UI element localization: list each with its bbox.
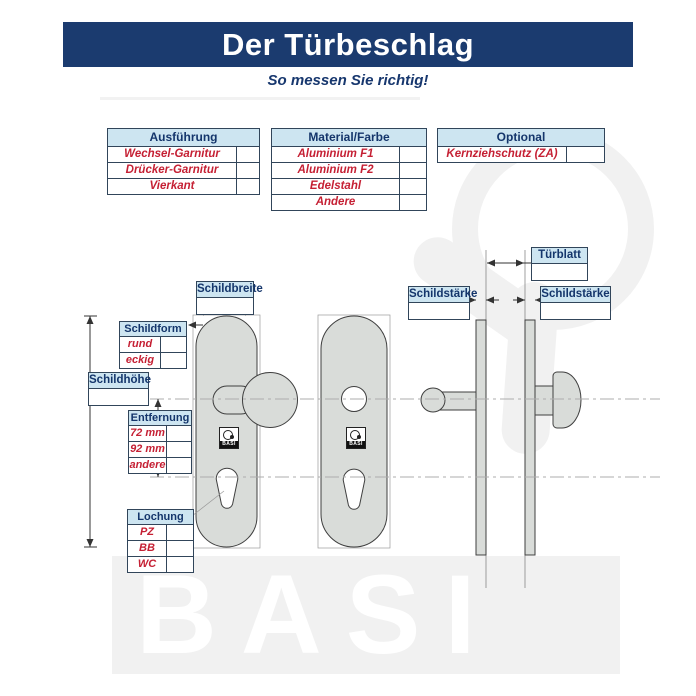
table-row: Andere — [272, 194, 426, 210]
table-row: PZ — [128, 525, 193, 540]
value-box — [196, 298, 254, 315]
table-optional: Optional Kernziehschutz (ZA) — [437, 128, 605, 163]
table-row: 72 mm — [129, 426, 191, 441]
table-ausfuehrung: Ausführung Wechsel-Garnitur Drücker-Garn… — [107, 128, 260, 195]
option-label: Aluminium F2 — [272, 163, 399, 178]
table-row: Kernziehschutz (ZA) — [438, 147, 604, 162]
basi-logo: BASI — [346, 427, 366, 449]
table-row: Vierkant — [108, 178, 259, 194]
table-row: Aluminium F2 — [272, 162, 426, 178]
table-entfernung: Entfernung 72 mm 92 mm andere — [128, 410, 192, 474]
checkbox-cell — [166, 541, 193, 556]
label-text: Schildbreite — [196, 281, 254, 298]
table-header: Optional — [438, 129, 604, 147]
label-schildbreite: Schildbreite — [196, 281, 254, 315]
option-label: Drücker-Garnitur — [108, 163, 236, 178]
checkbox-cell — [399, 179, 426, 194]
basi-logo-text: BASI — [347, 441, 365, 448]
checkbox-cell — [236, 179, 259, 194]
table-header: Ausführung — [108, 129, 259, 147]
value-box — [531, 264, 588, 281]
table-row: Drücker-Garnitur — [108, 162, 259, 178]
basi-logo: BASI — [219, 427, 239, 449]
label-schildstaerke-right: Schildstärke — [540, 286, 611, 320]
option-label: Andere — [272, 195, 399, 210]
table-row: BB — [128, 540, 193, 556]
checkbox-cell — [566, 147, 604, 162]
option-label: andere — [129, 458, 166, 473]
option-label: Kernziehschutz (ZA) — [438, 147, 566, 162]
table-row: Wechsel-Garnitur — [108, 147, 259, 162]
checkbox-cell — [236, 163, 259, 178]
checkbox-cell — [399, 163, 426, 178]
checkbox-cell — [399, 195, 426, 210]
checkbox-cell — [166, 458, 191, 473]
knob-profile — [553, 372, 581, 428]
page-subtitle: So messen Sie richtig! — [0, 72, 696, 89]
value-box — [408, 303, 470, 320]
option-label: Vierkant — [108, 179, 236, 194]
table-row: rund — [120, 337, 186, 352]
label-text: Schildstärke — [408, 286, 470, 303]
option-label: rund — [120, 337, 160, 352]
checkbox-cell — [166, 442, 191, 457]
table-header: Lochung — [128, 510, 193, 525]
basi-symbol-icon — [347, 428, 365, 441]
label-schildstaerke-left: Schildstärke — [408, 286, 470, 320]
option-label: BB — [128, 541, 166, 556]
option-label: 92 mm — [129, 442, 166, 457]
table-row: Edelstahl — [272, 178, 426, 194]
checkbox-cell — [166, 557, 193, 572]
option-label: Wechsel-Garnitur — [108, 147, 236, 162]
checkbox-cell — [166, 426, 191, 441]
table-row: andere — [129, 457, 191, 473]
table-schildform: Schildform rund eckig — [119, 321, 187, 369]
front-view-knob-plate — [193, 315, 298, 548]
option-label: 72 mm — [129, 426, 166, 441]
label-tuerblatt: Türblatt — [531, 247, 588, 281]
value-box — [88, 389, 149, 406]
table-lochung: Lochung PZ BB WC — [127, 509, 194, 573]
checkbox-cell — [236, 147, 259, 162]
checkbox-cell — [166, 525, 193, 540]
option-label: Edelstahl — [272, 179, 399, 194]
label-schildhoehe: Schildhöhe — [88, 372, 149, 406]
option-label: PZ — [128, 525, 166, 540]
option-label: Aluminium F1 — [272, 147, 399, 162]
infographic-page: BASI — [0, 0, 696, 696]
table-row: Aluminium F1 — [272, 147, 426, 162]
basi-logo-text: BASI — [220, 441, 238, 448]
basi-symbol-icon — [220, 428, 238, 441]
label-text: Türblatt — [531, 247, 588, 264]
table-row: 92 mm — [129, 441, 191, 457]
label-text: Schildstärke — [540, 286, 611, 303]
table-header: Schildform — [120, 322, 186, 337]
table-row: eckig — [120, 352, 186, 368]
table-header: Material/Farbe — [272, 129, 426, 147]
option-label: eckig — [120, 353, 160, 368]
value-box — [540, 303, 611, 320]
checkbox-cell — [399, 147, 426, 162]
table-header: Entfernung — [129, 411, 191, 426]
table-material-farbe: Material/Farbe Aluminium F1 Aluminium F2… — [271, 128, 427, 211]
technical-drawing — [0, 0, 696, 696]
table-row: WC — [128, 556, 193, 572]
label-text: Schildhöhe — [88, 372, 149, 389]
option-label: WC — [128, 557, 166, 572]
checkbox-cell — [160, 337, 186, 352]
side-view — [421, 320, 581, 555]
page-title: Der Türbeschlag — [63, 22, 633, 67]
checkbox-cell — [160, 353, 186, 368]
